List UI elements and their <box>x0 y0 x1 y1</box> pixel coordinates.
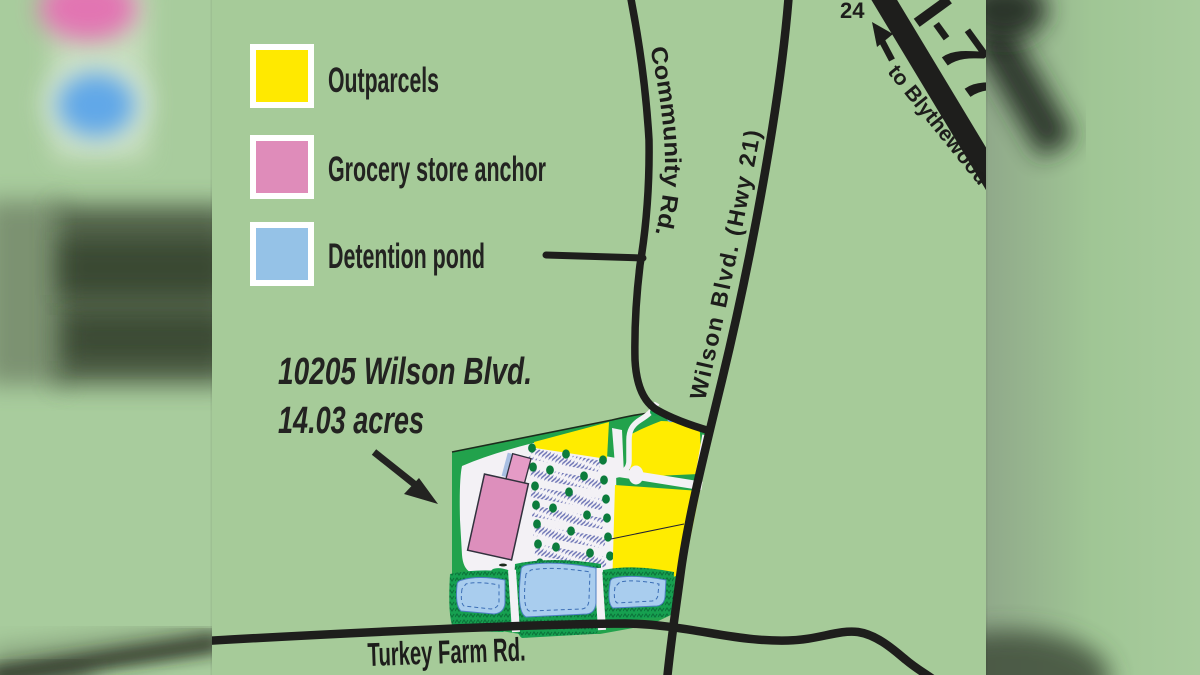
svg-text:Outparcels: Outparcels <box>328 61 439 100</box>
svg-text:Detention pond: Detention pond <box>328 237 485 276</box>
svg-text:Grocery store anchor: Grocery store anchor <box>328 150 546 189</box>
svg-text:10205 Wilson Blvd.: 10205 Wilson Blvd. <box>278 351 532 393</box>
svg-text:24: 24 <box>840 0 865 23</box>
svg-text:14.03 acres: 14.03 acres <box>278 400 424 442</box>
svg-text:Turkey Farm Rd.: Turkey Farm Rd. <box>367 631 526 673</box>
